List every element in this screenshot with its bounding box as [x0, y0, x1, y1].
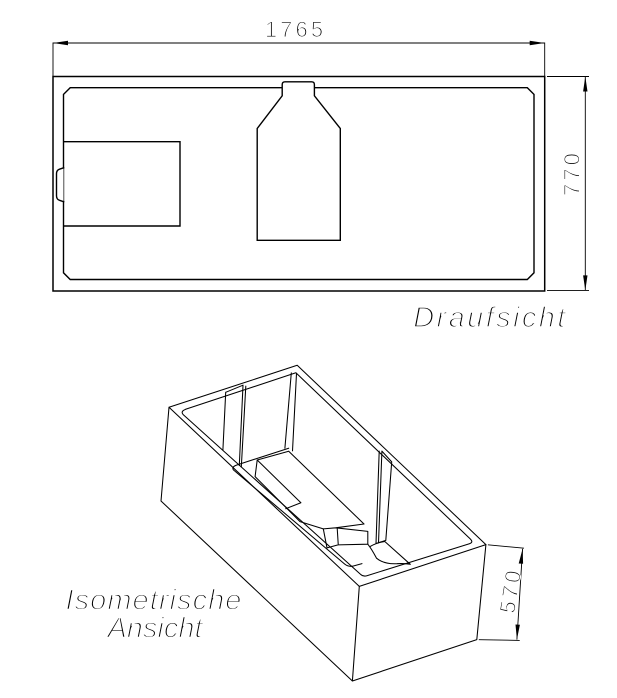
svg-text:770: 770 — [560, 150, 585, 196]
svg-text:Draufsicht: Draufsicht — [413, 302, 568, 334]
svg-text:Ansicht: Ansicht — [105, 613, 204, 645]
svg-text:1765: 1765 — [265, 17, 326, 42]
